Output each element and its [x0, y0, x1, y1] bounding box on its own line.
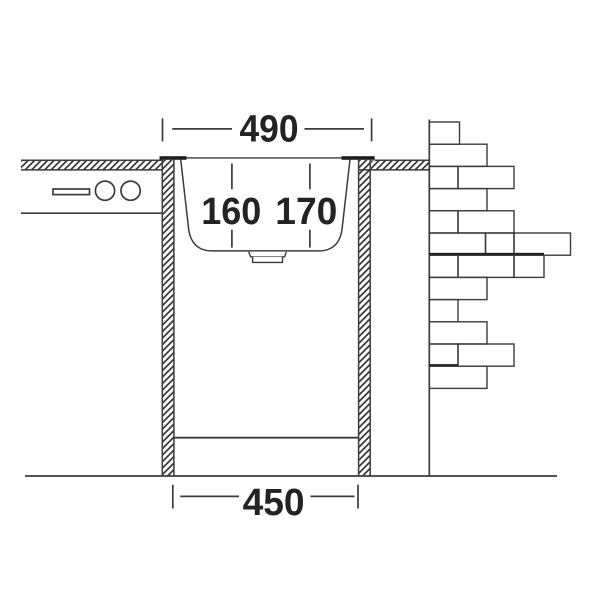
svg-text:450: 450	[243, 482, 305, 524]
svg-text:170: 170	[275, 191, 337, 233]
svg-text:160: 160	[201, 191, 261, 233]
svg-text:490: 490	[240, 108, 299, 150]
